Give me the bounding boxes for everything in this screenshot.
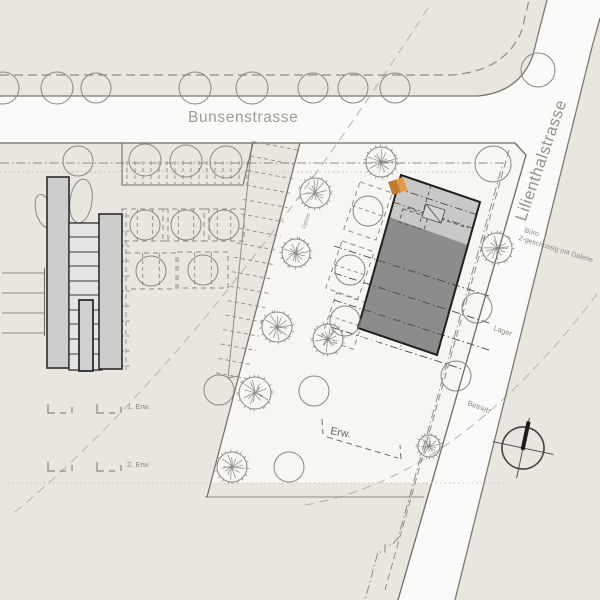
legend-label-erw2: 2. Erw. (127, 460, 150, 469)
street-label-bunsenstrasse: Bunsenstrasse (188, 109, 298, 126)
legend-label-erw1: 1. Erw. (127, 402, 150, 411)
building-wing-west (47, 177, 69, 368)
site-plan-drawing: Bunsenstrasse Lilienthalstrasse Büro 2-g… (0, 0, 600, 600)
building-wing-east (99, 214, 122, 369)
site-plan: Bunsenstrasse Lilienthalstrasse Büro 2-g… (0, 0, 600, 600)
building-inner-core (79, 300, 93, 371)
